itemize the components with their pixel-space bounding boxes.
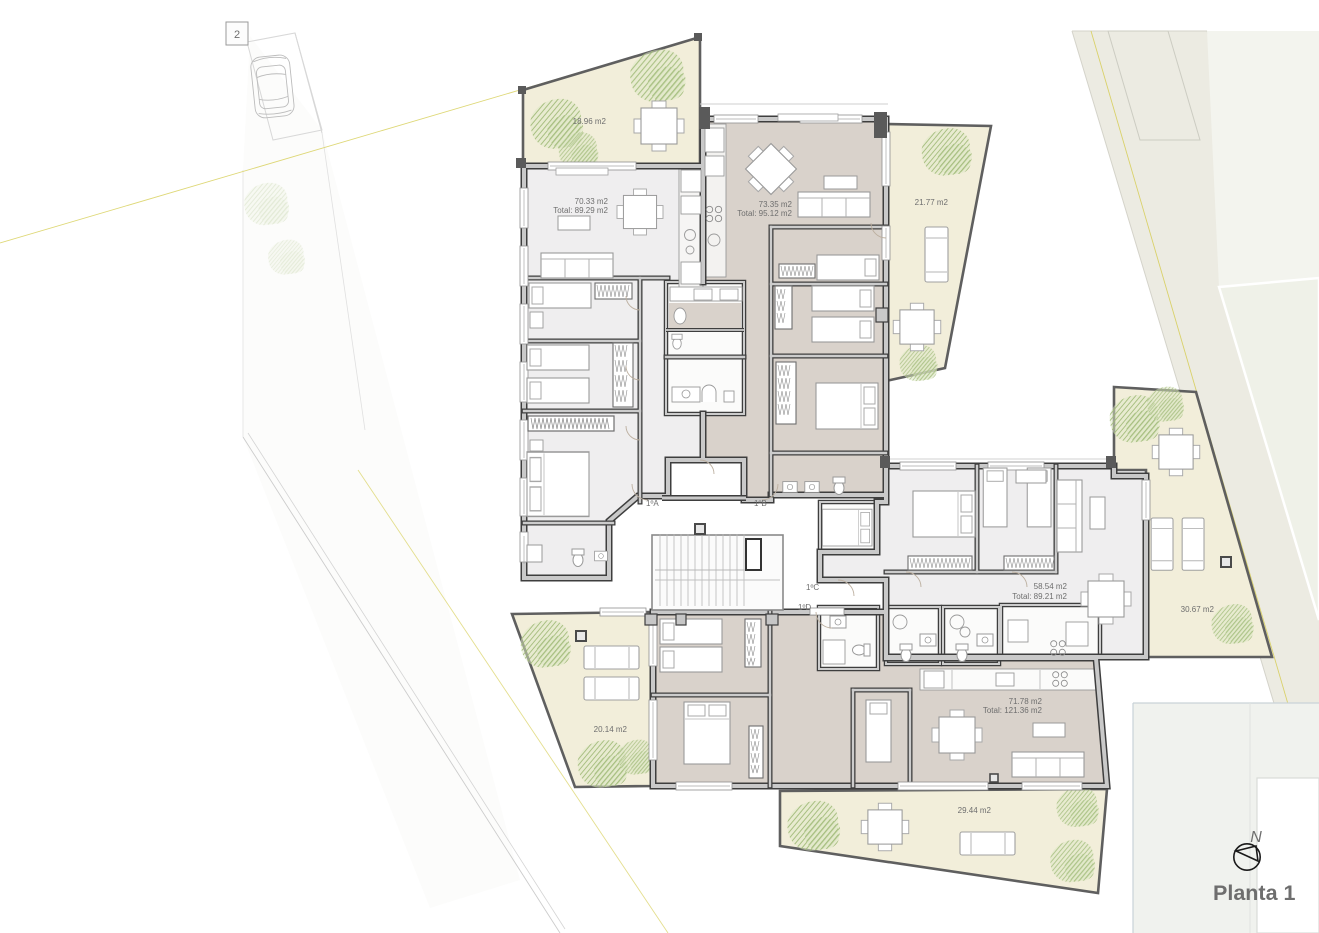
svg-text:Total: 89.21 m2: Total: 89.21 m2 <box>1012 592 1067 601</box>
svg-text:Total: 121.36 m2: Total: 121.36 m2 <box>983 706 1043 715</box>
svg-text:1ºD: 1ºD <box>798 603 811 612</box>
svg-text:18.96 m2: 18.96 m2 <box>573 117 607 126</box>
svg-text:70.33 m2: 70.33 m2 <box>575 197 609 206</box>
svg-text:73.35 m2: 73.35 m2 <box>759 200 793 209</box>
svg-text:N: N <box>1250 829 1262 846</box>
svg-text:21.77 m2: 21.77 m2 <box>915 198 949 207</box>
svg-text:20.14 m2: 20.14 m2 <box>594 725 628 734</box>
svg-text:29.44 m2: 29.44 m2 <box>958 806 992 815</box>
svg-text:1ºC: 1ºC <box>806 583 819 592</box>
svg-text:58.54 m2: 58.54 m2 <box>1034 582 1068 591</box>
svg-text:Planta 1: Planta 1 <box>1213 881 1295 905</box>
svg-text:1ºB: 1ºB <box>754 499 767 508</box>
svg-text:2: 2 <box>234 29 240 41</box>
svg-text:30.67 m2: 30.67 m2 <box>1181 605 1215 614</box>
svg-text:1ºA: 1ºA <box>646 499 659 508</box>
svg-text:71.78 m2: 71.78 m2 <box>1009 697 1043 706</box>
svg-text:Total: 89.29 m2: Total: 89.29 m2 <box>553 206 608 215</box>
svg-text:Total: 95.12 m2: Total: 95.12 m2 <box>737 209 792 218</box>
